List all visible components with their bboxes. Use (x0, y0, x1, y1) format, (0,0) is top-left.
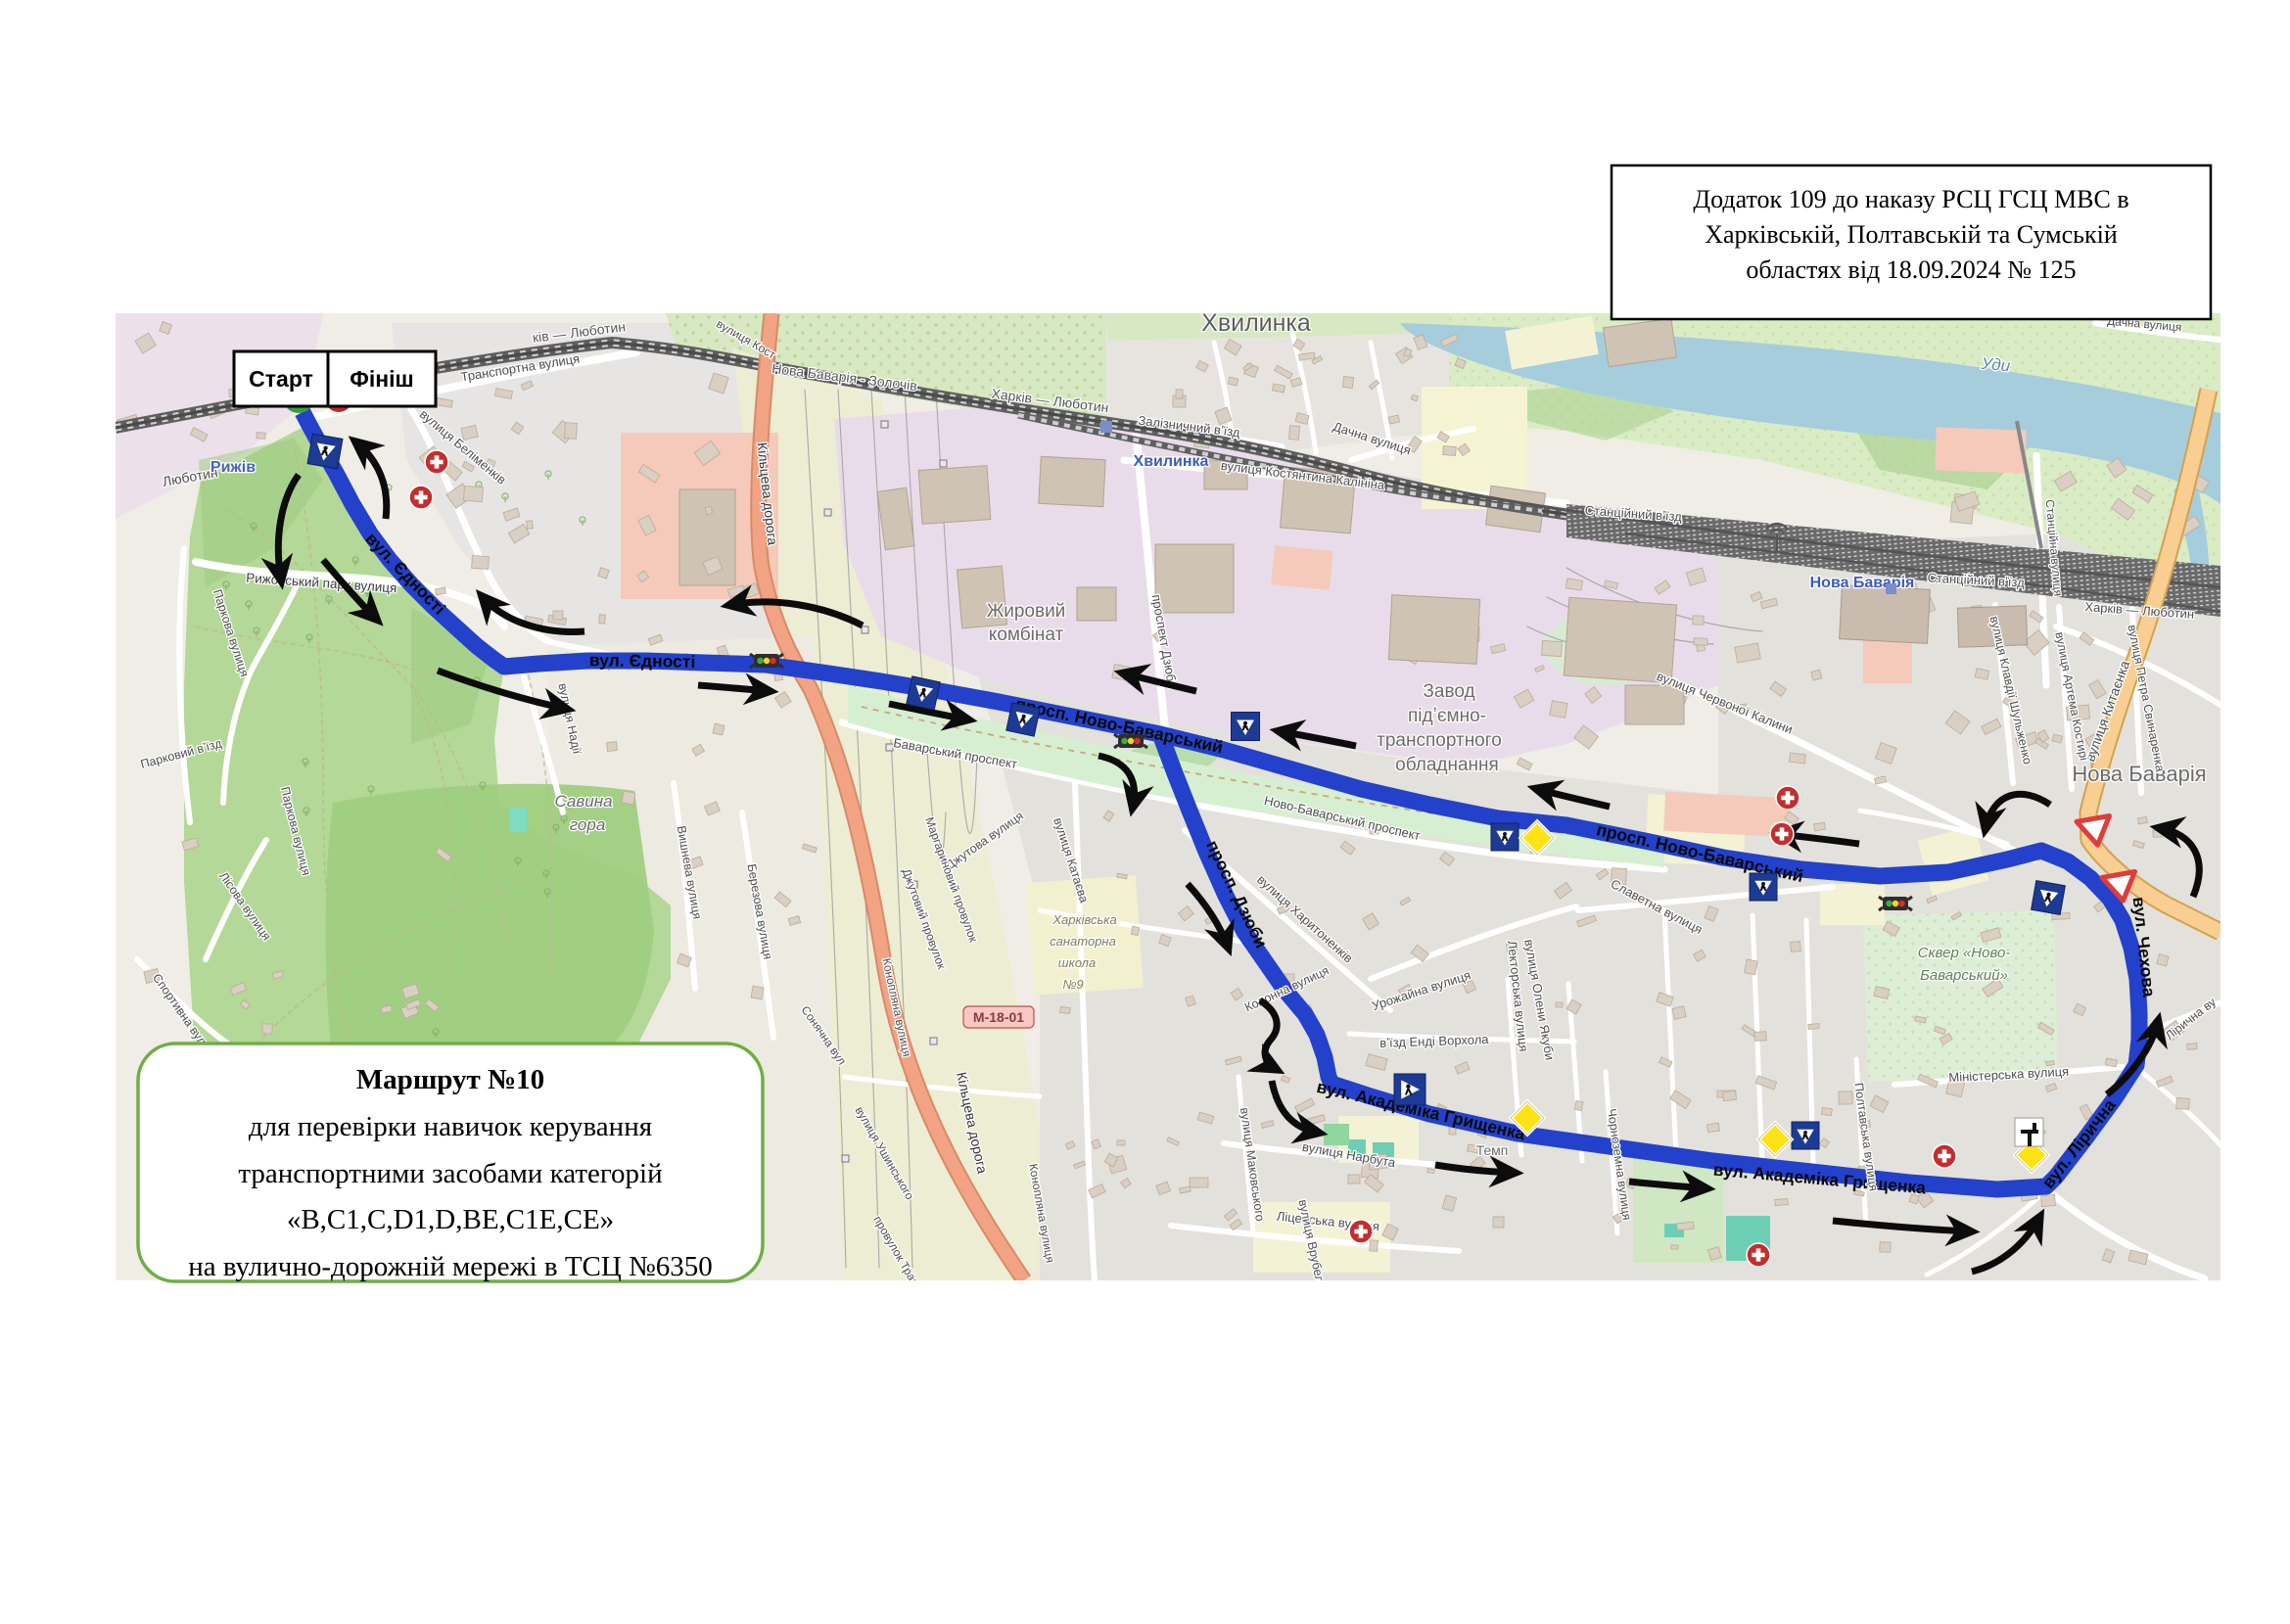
svg-text:Нова Баварія: Нова Баварія (1810, 575, 1915, 591)
svg-text:підʼємно-: підʼємно- (1408, 706, 1486, 726)
svg-text:М-18-01: М-18-01 (973, 1009, 1024, 1025)
svg-text:санаторна: санаторна (1050, 934, 1116, 949)
svg-text:транспортного: транспортного (1377, 730, 1502, 751)
svg-text:Хвилинка: Хвилинка (1201, 309, 1311, 337)
svg-text:вул. Єдності: вул. Єдності (589, 650, 696, 672)
svg-text:«В,С1,С,D1,D,ВЕ,С1Е,СЕ»: «В,С1,С,D1,D,ВЕ,С1Е,СЕ» (287, 1204, 614, 1235)
svg-text:комбінат: комбінат (989, 625, 1064, 645)
svg-text:Харківській, Полтавській та Су: Харківській, Полтавській та Сумській (1705, 220, 2118, 249)
svg-text:Хвилинка: Хвилинка (1134, 453, 1209, 470)
svg-text:Уди: Уди (1980, 354, 2012, 376)
svg-text:Маршрут №10: Маршрут №10 (356, 1064, 544, 1095)
svg-text:на вулично-дорожній мережі в Т: на вулично-дорожній мережі в ТСЦ №6350 (188, 1251, 713, 1282)
svg-text:школа: школа (1058, 955, 1096, 970)
svg-text:Баварський»: Баварський» (1920, 967, 2008, 984)
svg-text:Савина: Савина (554, 792, 612, 811)
svg-text:транспортними засобами катего: транспортними засобами категорій (238, 1158, 662, 1189)
svg-text:Рижів: Рижів (210, 459, 256, 476)
svg-text:для перевірки навичок керуванн: для перевірки навичок керування (249, 1111, 652, 1142)
svg-text:Харківська: Харківська (1052, 912, 1116, 927)
svg-text:Нова Баварія: Нова Баварія (2072, 762, 2206, 786)
svg-text:Сквер «Ново-: Сквер «Ново- (1918, 945, 2011, 961)
svg-text:Старт: Старт (249, 366, 313, 392)
svg-text:Жировий: Жировий (987, 601, 1066, 622)
svg-text:Темп: Темп (1476, 1142, 1509, 1158)
svg-text:№9: №9 (1062, 977, 1083, 992)
svg-text:Фініш: Фініш (350, 366, 413, 392)
svg-text:областях від 18.09.2024 № 125: областях від 18.09.2024 № 125 (1746, 255, 2076, 284)
svg-text:обладнання: обладнання (1395, 755, 1499, 775)
svg-text:Завод: Завод (1423, 681, 1474, 702)
svg-text:Додаток 109 до наказу РСЦ ГСЦ: Додаток 109 до наказу РСЦ ГСЦ МВС в (1693, 185, 2128, 213)
svg-text:гора: гора (570, 815, 606, 834)
